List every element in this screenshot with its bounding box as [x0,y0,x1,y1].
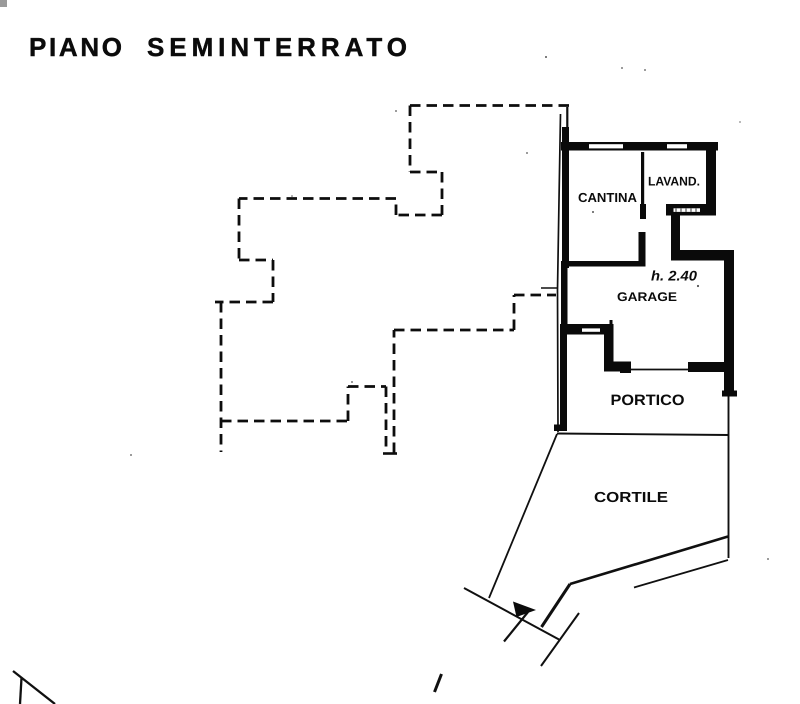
svg-text:SEMINTERRATO: SEMINTERRATO [147,32,407,62]
svg-text:LAVAND.: LAVAND. [648,175,700,189]
svg-text:CORTILE: CORTILE [594,490,668,506]
svg-text:GARAGE: GARAGE [617,290,677,304]
svg-text:PORTICO: PORTICO [611,392,685,409]
svg-text:h. 2.40: h. 2.40 [651,268,697,284]
svg-text:CANTINA: CANTINA [578,190,638,205]
svg-text:PIANO: PIANO [29,32,122,62]
